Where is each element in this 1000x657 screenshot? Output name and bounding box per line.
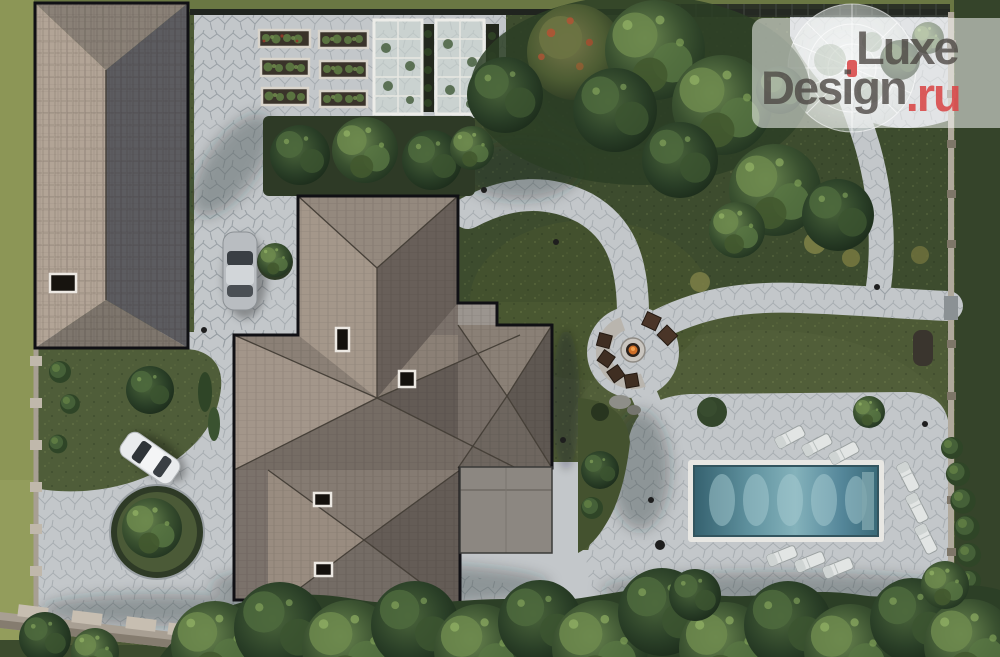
garage-building [35, 3, 188, 348]
logo-line2: Design.ru [761, 62, 960, 114]
site-plan-render: Luxe Design.ru [0, 0, 1000, 657]
garage-chimney [50, 274, 76, 292]
swimming-pool [688, 460, 884, 542]
house-patio [460, 467, 552, 553]
circular-planter [110, 485, 204, 579]
entry-shrub [258, 243, 292, 277]
watermark-panel: Luxe Design.ru [752, 18, 1000, 128]
garden-bench [913, 330, 933, 366]
logo-ru-suffix: .ru [906, 69, 960, 121]
logo-design-text: Design [761, 61, 906, 114]
hedge-bed [263, 116, 494, 196]
